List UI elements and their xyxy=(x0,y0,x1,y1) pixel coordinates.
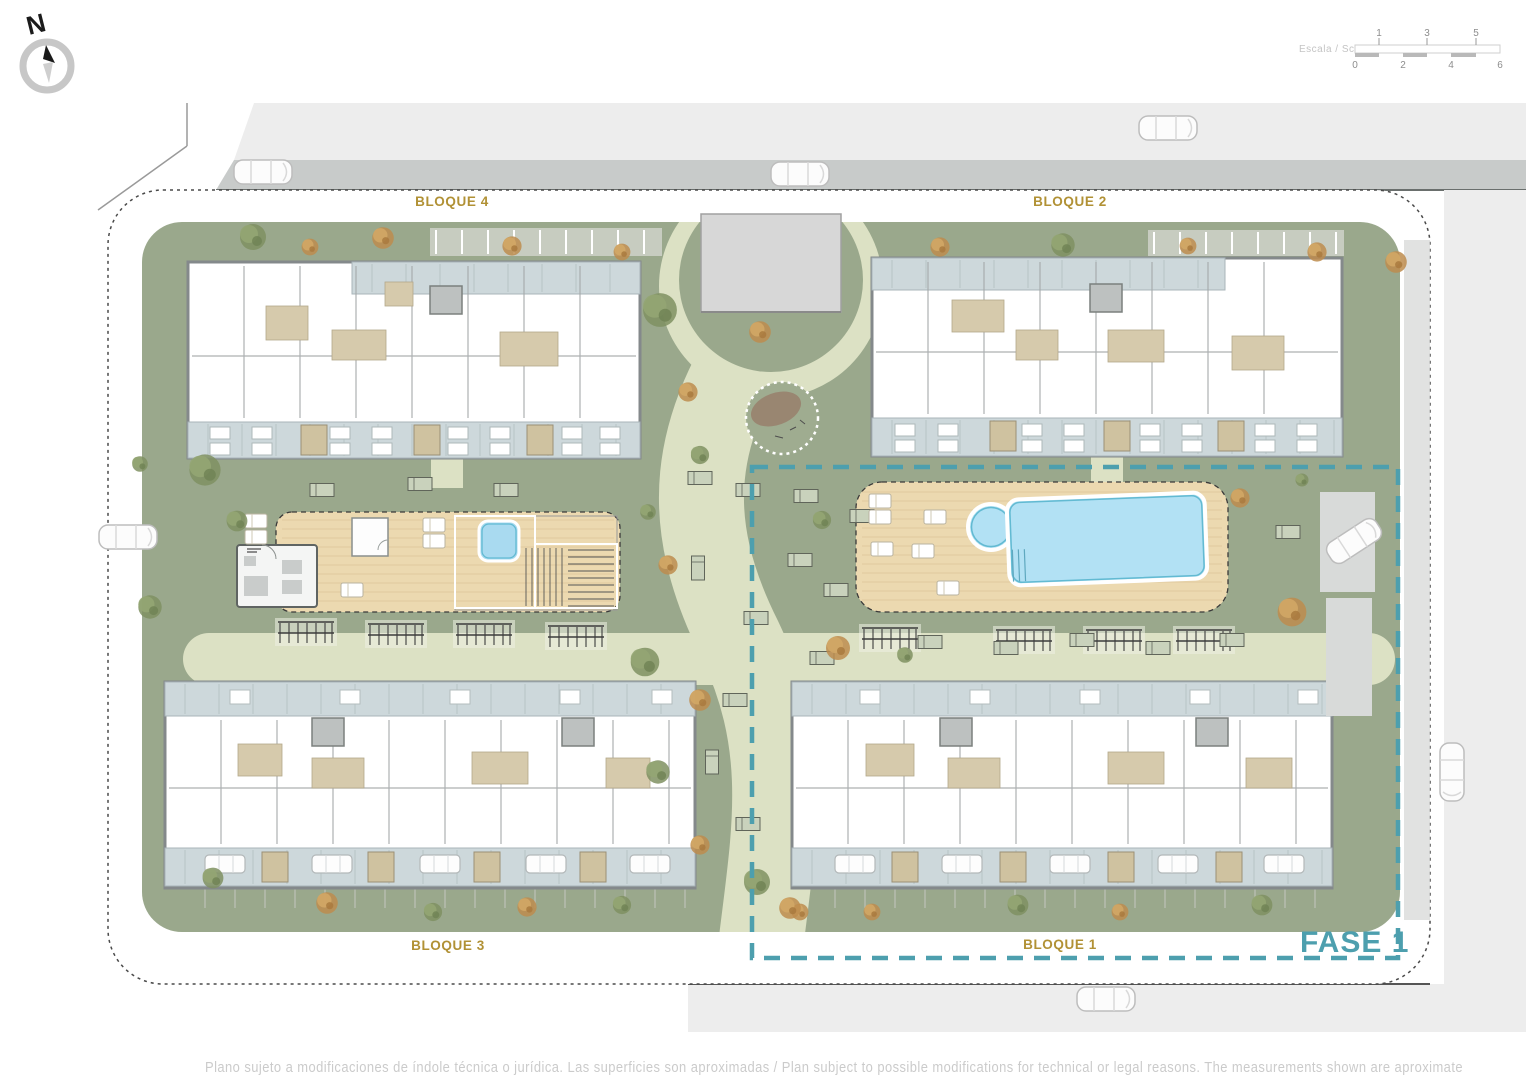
storage-cell xyxy=(368,852,394,882)
building-bloque-4 xyxy=(188,262,640,458)
terrace-lounger xyxy=(938,440,958,452)
bathroom-zone xyxy=(385,282,413,306)
tree-icon xyxy=(502,236,521,255)
terrace-lounger xyxy=(1182,440,1202,452)
storage-cell xyxy=(1000,852,1026,882)
terrace-lounger xyxy=(562,427,582,439)
scale-tick: 5 xyxy=(1473,28,1479,39)
scale-tick: 2 xyxy=(1400,60,1406,71)
tree-icon xyxy=(643,293,677,327)
terrace-lounger xyxy=(1140,440,1160,452)
terrace-lounger xyxy=(895,440,915,452)
sun-lounger-icon xyxy=(869,494,891,508)
tree-icon xyxy=(132,456,148,472)
bathroom-zone xyxy=(472,752,528,784)
tree-icon xyxy=(424,903,442,921)
label-bloque-2: BLOQUE 2 xyxy=(1033,194,1107,209)
storage-cell xyxy=(262,852,288,882)
sun-lounger-icon xyxy=(423,534,445,548)
terrace-lounger xyxy=(1140,424,1160,436)
sun-lounger-icon xyxy=(912,544,934,558)
main-pool xyxy=(1006,492,1207,586)
sun-lounger-icon xyxy=(994,642,1018,655)
sun-lounger-icon xyxy=(245,530,267,544)
sun-lounger-icon xyxy=(736,484,760,497)
storage-cell xyxy=(414,425,440,455)
tree-icon xyxy=(240,224,266,250)
tree-icon xyxy=(1296,474,1309,487)
building-bloque-3 xyxy=(165,682,695,888)
sun-lounger-icon xyxy=(788,554,812,567)
terrace-lounger xyxy=(1064,440,1084,452)
stair-core xyxy=(1196,718,1228,746)
storage-cell xyxy=(1216,852,1242,882)
terrace-lounger xyxy=(490,443,510,455)
storage-cell xyxy=(892,852,918,882)
sun-lounger-icon xyxy=(869,510,891,524)
sun-lounger-icon xyxy=(310,484,334,497)
tree-icon xyxy=(517,897,536,916)
compass-needle-icon xyxy=(43,45,55,83)
stair-core xyxy=(430,286,462,314)
terrace-table xyxy=(450,690,470,704)
storage-cell xyxy=(301,425,327,455)
terrace-lounger xyxy=(372,427,392,439)
terrace-table xyxy=(652,690,672,704)
pergola-icon xyxy=(453,620,515,648)
terrace-lounger xyxy=(1022,424,1042,436)
scale-tick: 3 xyxy=(1424,28,1430,39)
club-house xyxy=(237,545,317,607)
tree-icon xyxy=(372,227,394,249)
parked-car-icon xyxy=(1264,855,1304,873)
label-bloque-3: BLOQUE 3 xyxy=(411,938,485,953)
terrace-lounger xyxy=(330,427,350,439)
bathroom-zone xyxy=(866,744,914,776)
sun-lounger-icon xyxy=(937,581,959,595)
scale-tick: 1 xyxy=(1376,28,1382,39)
site-plan: BLOQUE 4 BLOQUE 2 BLOQUE 3 BLOQUE 1 FASE… xyxy=(0,0,1526,1080)
scale-tick: 4 xyxy=(1448,60,1454,71)
terrace-table xyxy=(1080,690,1100,704)
pergola-icon xyxy=(365,620,427,648)
sun-lounger-icon xyxy=(245,514,267,528)
parked-car-icon xyxy=(420,855,460,873)
tree-icon xyxy=(1230,488,1249,507)
bathroom-zone xyxy=(1016,330,1058,360)
car-icon xyxy=(771,162,829,186)
stair-core xyxy=(1090,284,1122,312)
parked-car-icon xyxy=(526,855,566,873)
car-icon xyxy=(234,160,292,184)
sun-lounger-icon xyxy=(341,583,363,597)
terrace-lounger xyxy=(1064,424,1084,436)
parked-car-icon xyxy=(630,855,670,873)
bathroom-zone xyxy=(606,758,650,788)
parked-car-icon xyxy=(835,855,875,873)
tree-icon xyxy=(897,647,913,663)
terrace-table xyxy=(230,690,250,704)
parked-car-icon xyxy=(942,855,982,873)
terrace-lounger xyxy=(938,424,958,436)
tree-icon xyxy=(203,868,224,889)
tree-icon xyxy=(690,835,709,854)
sun-lounger-icon xyxy=(736,818,760,831)
terrace-lounger xyxy=(252,427,272,439)
sun-lounger-icon xyxy=(1220,634,1244,647)
tree-icon xyxy=(744,869,770,895)
bathroom-zone xyxy=(1108,752,1164,784)
sun-lounger-icon xyxy=(723,694,747,707)
terrace-lounger xyxy=(1255,440,1275,452)
scale-tick: 6 xyxy=(1497,60,1503,71)
terrace-lounger xyxy=(210,427,230,439)
tree-icon xyxy=(316,892,338,914)
car-icon xyxy=(1077,987,1135,1011)
bathroom-zone xyxy=(952,300,1004,332)
sun-lounger-icon xyxy=(423,518,445,532)
right-inner-drive xyxy=(1404,240,1430,920)
sun-lounger-icon xyxy=(1276,526,1300,539)
car-icon xyxy=(1440,743,1464,801)
scale-bar: Escala / Scale 1 3 5 0 2 4 6 xyxy=(1299,28,1503,71)
bathroom-zone xyxy=(266,306,308,340)
tree-icon xyxy=(189,454,220,485)
disclaimer-text: Plano sujeto a modificaciones de índole … xyxy=(205,1060,1463,1076)
tree-icon xyxy=(1252,895,1273,916)
bathroom-zone xyxy=(1246,758,1292,788)
car-icon xyxy=(99,525,157,549)
sun-lounger-icon xyxy=(871,542,893,556)
storage-cell xyxy=(1218,421,1244,451)
tree-icon xyxy=(826,636,850,660)
bathroom-zone xyxy=(312,758,364,788)
tree-icon xyxy=(138,595,161,618)
car-icon xyxy=(1139,116,1197,140)
tree-icon xyxy=(813,511,831,529)
sun-lounger-icon xyxy=(918,636,942,649)
tree-icon xyxy=(1180,238,1197,255)
terrace-table xyxy=(1298,690,1318,704)
label-bloque-4: BLOQUE 4 xyxy=(415,194,489,209)
tree-icon xyxy=(613,896,631,914)
tree-icon xyxy=(1385,251,1407,273)
sun-lounger-icon xyxy=(494,484,518,497)
bathroom-zone xyxy=(500,332,558,366)
tree-icon xyxy=(691,446,709,464)
stair-core xyxy=(312,718,344,746)
tree-icon xyxy=(749,321,771,343)
tree-icon xyxy=(646,760,669,783)
tree-icon xyxy=(640,504,656,520)
tree-icon xyxy=(1307,242,1326,261)
terrace-lounger xyxy=(448,427,468,439)
terrace-band xyxy=(872,258,1225,290)
sun-lounger-icon xyxy=(924,510,946,524)
tree-icon xyxy=(1112,904,1129,921)
deck-pavilion xyxy=(352,518,388,556)
tree-icon xyxy=(302,239,319,256)
terrace-lounger xyxy=(1022,440,1042,452)
sun-lounger-icon xyxy=(1070,634,1094,647)
terrace-lounger xyxy=(1297,440,1317,452)
terrace-table xyxy=(340,690,360,704)
bathroom-zone xyxy=(332,330,386,360)
terrace-lounger xyxy=(600,443,620,455)
tree-icon xyxy=(930,237,949,256)
playground xyxy=(746,382,818,454)
bathroom-zone xyxy=(1108,330,1164,362)
terrace-lounger xyxy=(210,443,230,455)
terrace-table xyxy=(970,690,990,704)
parked-car-icon xyxy=(312,855,352,873)
tree-icon xyxy=(678,382,697,401)
pergola-icon xyxy=(859,624,921,652)
terrace-lounger xyxy=(895,424,915,436)
terrace-lounger xyxy=(600,427,620,439)
tree-icon xyxy=(779,897,801,919)
central-plaza xyxy=(701,214,841,312)
terrace-lounger xyxy=(490,427,510,439)
bathroom-zone xyxy=(238,744,282,776)
scale-tick: 0 xyxy=(1352,60,1358,71)
fase1-label: FASE 1 xyxy=(1300,926,1409,959)
sun-lounger-icon xyxy=(692,556,705,580)
site-plan-page: BLOQUE 4 BLOQUE 2 BLOQUE 3 BLOQUE 1 FASE… xyxy=(0,0,1526,1080)
sun-lounger-icon xyxy=(706,750,719,774)
stair-core xyxy=(562,718,594,746)
building-bloque-2 xyxy=(872,258,1342,456)
storage-cell xyxy=(580,852,606,882)
tree-icon xyxy=(1278,598,1307,627)
tree-icon xyxy=(689,689,711,711)
storage-cell xyxy=(1108,852,1134,882)
north-compass-icon: N xyxy=(23,7,71,90)
sun-lounger-icon xyxy=(824,584,848,597)
tree-icon xyxy=(1051,233,1074,256)
sun-lounger-icon xyxy=(408,478,432,491)
right-road xyxy=(1444,190,1526,1032)
north-label: N xyxy=(23,7,48,41)
spa-pool xyxy=(479,521,519,561)
storage-cell xyxy=(1104,421,1130,451)
pergola-icon xyxy=(275,618,337,646)
building-bloque-1 xyxy=(792,682,1332,888)
tree-icon xyxy=(658,555,677,574)
tree-icon xyxy=(614,244,631,261)
terrace-table xyxy=(560,690,580,704)
tree-icon xyxy=(864,904,881,921)
terrace-lounger xyxy=(330,443,350,455)
parked-car-icon xyxy=(1158,855,1198,873)
terrace-lounger xyxy=(562,443,582,455)
terrace-lounger xyxy=(448,443,468,455)
stair-core xyxy=(940,718,972,746)
terrace-lounger xyxy=(252,443,272,455)
sun-lounger-icon xyxy=(688,472,712,485)
terrace-lounger xyxy=(372,443,392,455)
terrace-lounger xyxy=(1182,424,1202,436)
bathroom-zone xyxy=(948,758,1000,788)
storage-cell xyxy=(527,425,553,455)
parked-car-icon xyxy=(1050,855,1090,873)
bathroom-zone xyxy=(1232,336,1284,370)
terrace-lounger xyxy=(1297,424,1317,436)
tree-icon xyxy=(227,511,248,532)
storage-cell xyxy=(990,421,1016,451)
terrace-lounger xyxy=(1255,424,1275,436)
pergola-icon xyxy=(545,622,607,650)
sun-lounger-icon xyxy=(1146,642,1170,655)
terrace-table xyxy=(1190,690,1210,704)
sun-lounger-icon xyxy=(794,490,818,503)
tree-icon xyxy=(631,648,660,677)
sun-lounger-icon xyxy=(744,612,768,625)
tree-icon xyxy=(1008,895,1029,916)
terrace-table xyxy=(860,690,880,704)
label-bloque-1: BLOQUE 1 xyxy=(1023,937,1097,952)
storage-cell xyxy=(474,852,500,882)
